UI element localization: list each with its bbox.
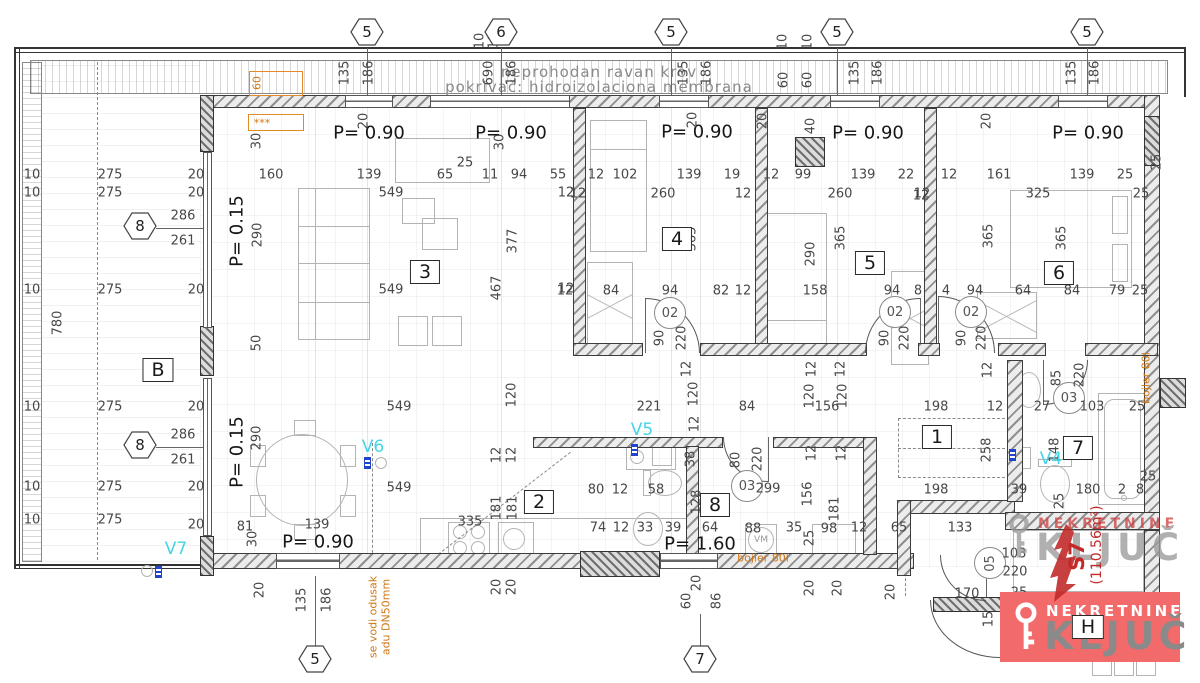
door-number-text: 05 bbox=[982, 555, 997, 572]
dimension-label: 275 bbox=[98, 400, 123, 415]
dimension-label: 20 bbox=[690, 575, 705, 592]
dimension-label: 335 bbox=[458, 515, 483, 530]
dimension-label: 12 bbox=[735, 284, 752, 299]
shaft-label: V6 bbox=[362, 437, 384, 457]
dimension-label: 220 bbox=[1073, 363, 1088, 388]
dimension-label: 365 bbox=[834, 226, 849, 251]
dimension-label: 80 bbox=[588, 483, 605, 498]
dimension-label: 27 bbox=[1034, 400, 1051, 415]
dimension-label: 299 bbox=[756, 482, 781, 497]
fixture-circle bbox=[256, 434, 348, 526]
grid-axis-marker: 5 bbox=[349, 16, 385, 52]
dimension-label: 156 bbox=[801, 482, 816, 507]
floor-level-label: P= 0.15 bbox=[227, 195, 248, 267]
dimension-label: 10 bbox=[24, 513, 41, 528]
wall-crosshatch bbox=[200, 536, 214, 576]
dimension-label: 20 bbox=[188, 168, 205, 183]
floor-level-label: P= 0.90 bbox=[832, 123, 904, 144]
dimension-label: 50 bbox=[250, 335, 265, 352]
dimension-label: 467 bbox=[490, 276, 505, 301]
dimension-label: 94 bbox=[967, 284, 984, 299]
dimension-label: 20 bbox=[505, 579, 520, 596]
dimension-label: 180 bbox=[1076, 483, 1101, 498]
furniture bbox=[340, 445, 356, 467]
agency-name-main: KLJUČ bbox=[1044, 614, 1191, 658]
dimension-label: 90 bbox=[955, 330, 970, 347]
dimension-label: 275 bbox=[98, 168, 123, 183]
dimension-label: 120 bbox=[687, 382, 702, 407]
dimension-label: 90 bbox=[653, 330, 668, 347]
dimension-label: 84 bbox=[1064, 284, 1081, 299]
dimension-label: 170 bbox=[955, 587, 980, 602]
dimension-label: 135 bbox=[677, 61, 692, 86]
grid-axis-marker: 8 bbox=[122, 429, 158, 465]
wall bbox=[773, 437, 877, 448]
annotation-note: VM bbox=[754, 535, 768, 545]
dimension-label: 12 bbox=[612, 483, 629, 498]
wall-crosshatch bbox=[200, 326, 214, 376]
dimension-label: 30 bbox=[493, 134, 508, 151]
dimension-label: 12 bbox=[805, 445, 820, 462]
dimension-label: 12 bbox=[613, 521, 630, 536]
dimension-label: 20 bbox=[980, 113, 995, 130]
svg-text:8: 8 bbox=[135, 436, 145, 454]
dimension-label: 12 bbox=[505, 447, 520, 464]
window bbox=[659, 95, 709, 108]
dimension-label: 181 bbox=[490, 496, 505, 521]
dimension-label: 12 bbox=[914, 187, 931, 202]
door-number-text: 03 bbox=[739, 479, 756, 494]
grid-axis-marker: 6 bbox=[483, 16, 519, 52]
dimension-label: 74 bbox=[590, 521, 607, 536]
dimension-label: 12 bbox=[981, 362, 996, 379]
room-label: H bbox=[1072, 615, 1104, 639]
dimension-label: 19 bbox=[724, 168, 741, 183]
wall bbox=[863, 437, 877, 555]
line bbox=[501, 95, 502, 565]
floor-level-label: P= 0.90 bbox=[1052, 123, 1124, 144]
dimension-label: 12 bbox=[735, 187, 752, 202]
dimension-label: 139 bbox=[305, 518, 330, 533]
line bbox=[372, 443, 373, 558]
wall bbox=[924, 108, 937, 355]
svg-text:5: 5 bbox=[1082, 23, 1092, 41]
vent-marker bbox=[631, 444, 638, 456]
dimension-label: 15 bbox=[982, 611, 997, 628]
dimension-label: 12 bbox=[688, 416, 703, 433]
dimension-label: 377 bbox=[506, 229, 521, 254]
dimension-label: 286 bbox=[171, 209, 196, 224]
dimension-label: 60 bbox=[801, 72, 816, 89]
dimension-label: 290 bbox=[250, 426, 265, 451]
floor-level-label: P= 0.90 bbox=[282, 532, 354, 553]
floor-level-label: P= 0.15 bbox=[227, 416, 248, 488]
window bbox=[276, 553, 340, 569]
floor-plan-canvas: neprohodan ravan krov pokrivač: hidroizo… bbox=[0, 0, 1200, 683]
dimension-label: 25 bbox=[803, 530, 818, 547]
dimension-label: 8 bbox=[1136, 483, 1144, 498]
furniture bbox=[398, 316, 428, 346]
dimension-label: 261 bbox=[171, 453, 196, 468]
room-label: 5 bbox=[855, 251, 885, 275]
line bbox=[837, 48, 838, 95]
window bbox=[660, 553, 718, 569]
dimension-label: 161 bbox=[987, 168, 1012, 183]
dimension-label: 20 bbox=[188, 518, 205, 533]
line bbox=[837, 95, 838, 565]
dimension-label: 549 bbox=[387, 400, 412, 415]
dimension-label: 8 bbox=[914, 284, 922, 299]
dimension-label: 181 bbox=[506, 496, 521, 521]
door-number: 02 bbox=[879, 296, 911, 328]
grid-axis-marker: 8 bbox=[122, 210, 158, 246]
furniture bbox=[1112, 196, 1128, 234]
grid-axis-marker: 7 bbox=[682, 643, 718, 679]
dimension-label: 365 bbox=[1055, 226, 1070, 251]
dimension-label: 365 bbox=[982, 224, 997, 249]
key-icon bbox=[1006, 514, 1032, 562]
furniture bbox=[652, 447, 672, 466]
dimension-label: 275 bbox=[98, 186, 123, 201]
grid-axis-marker: 5 bbox=[1069, 16, 1105, 52]
dimension-label: 286 bbox=[171, 428, 196, 443]
dimension-label: 186 bbox=[871, 61, 886, 86]
dimension-label: 186 bbox=[320, 588, 335, 613]
dimension-label: 12 bbox=[588, 168, 605, 183]
dimension-label: 10 bbox=[24, 186, 41, 201]
dimension-label: 258 bbox=[980, 438, 995, 463]
room-label: 8 bbox=[700, 493, 730, 517]
dimension-label: 39 bbox=[665, 521, 682, 536]
dimension-label: 135 bbox=[295, 588, 310, 613]
dimension-label: 181 bbox=[828, 497, 843, 522]
window bbox=[203, 152, 212, 328]
dimension-label: 20 bbox=[803, 580, 818, 597]
wall bbox=[573, 108, 586, 355]
frame-bottom-left2 bbox=[14, 568, 216, 569]
furniture bbox=[298, 302, 370, 340]
dimension-label: 186 bbox=[700, 61, 715, 86]
annotation-note: bojler 80l bbox=[1140, 352, 1153, 404]
window bbox=[203, 378, 212, 536]
annotation-note: se vodi odusak bbox=[367, 576, 380, 658]
room-label: 2 bbox=[524, 490, 554, 514]
dimension-label: 94 bbox=[884, 284, 901, 299]
window bbox=[830, 95, 880, 108]
annotation-note: bojler 80l bbox=[737, 552, 789, 565]
dimension-label: 275 bbox=[98, 283, 123, 298]
dimension-label: 39 bbox=[1011, 483, 1028, 498]
furniture bbox=[298, 226, 370, 264]
dimension-label: 58 bbox=[648, 483, 665, 498]
dimension-label: 25 bbox=[1132, 284, 1149, 299]
dimension-label: 94 bbox=[662, 284, 679, 299]
dimension-label: 12 bbox=[557, 284, 574, 299]
dimension-label: 186 bbox=[362, 61, 377, 86]
dimension-label: 549 bbox=[379, 283, 404, 298]
flat-roof-band: neprohodan ravan krov pokrivač: hidroizo… bbox=[30, 60, 1168, 94]
svg-text:7: 7 bbox=[695, 650, 705, 668]
frame-right-stub bbox=[1184, 47, 1186, 97]
door-number-text: 02 bbox=[963, 305, 980, 320]
key-icon bbox=[1012, 602, 1040, 654]
dimension-label: 290 bbox=[251, 223, 266, 248]
dimension-label: 60 bbox=[680, 593, 695, 610]
dimension-label: 12 bbox=[835, 445, 850, 462]
dimension-label: 220 bbox=[1003, 565, 1028, 580]
dimension-label: 325 bbox=[1026, 187, 1051, 202]
dimension-label: 220 bbox=[751, 447, 766, 472]
dimension-label: 221 bbox=[637, 400, 662, 415]
dimension-label: 158 bbox=[803, 284, 828, 299]
dimension-label: 25 bbox=[1150, 154, 1165, 171]
dimension-label: 120 bbox=[836, 384, 851, 409]
wall bbox=[573, 343, 643, 356]
frame-bottom-left bbox=[14, 564, 216, 566]
dimension-label: 12 bbox=[834, 361, 849, 378]
dimension-label: 549 bbox=[379, 186, 404, 201]
wall-crosshatch bbox=[200, 95, 214, 152]
furniture bbox=[432, 316, 462, 346]
dimension-label: 20 bbox=[188, 400, 205, 415]
dimension-label: 261 bbox=[171, 234, 196, 249]
frame-left-outer bbox=[14, 47, 16, 568]
wall-crosshatch bbox=[795, 137, 825, 167]
dimension-label: 25 bbox=[1133, 187, 1150, 202]
svg-text:5: 5 bbox=[832, 23, 842, 41]
apartment-area-label: (110.56m²) bbox=[1089, 505, 1105, 584]
dimension-label: 690 bbox=[482, 61, 497, 86]
red-arrow-mark bbox=[1046, 522, 1082, 608]
dimension-label: 98 bbox=[821, 522, 838, 537]
dimension-label: 275 bbox=[98, 513, 123, 528]
fixture-circle bbox=[141, 565, 153, 577]
annotation-note: adu DN50mm bbox=[380, 579, 393, 655]
window bbox=[345, 95, 393, 108]
dimension-label: 40 bbox=[804, 118, 819, 135]
door-number-text: 02 bbox=[887, 305, 904, 320]
dimension-label: 133 bbox=[948, 521, 973, 536]
frame-top-outer bbox=[14, 47, 1186, 49]
dimension-label: 80 bbox=[729, 452, 744, 469]
dimension-label: 85 bbox=[1050, 370, 1065, 387]
svg-text:6: 6 bbox=[496, 23, 506, 41]
dimension-label: 11 bbox=[482, 168, 499, 183]
fixture-circle bbox=[375, 457, 387, 469]
wall bbox=[755, 108, 768, 355]
dimension-label: 2 bbox=[1118, 483, 1126, 498]
dimension-label: 260 bbox=[651, 187, 676, 202]
wall-crosshatch bbox=[1160, 378, 1186, 408]
dimension-label: 20 bbox=[884, 584, 899, 601]
dimension-label: 10 bbox=[776, 34, 791, 51]
dimension-label: 139 bbox=[851, 168, 876, 183]
dimension-label: 12 bbox=[680, 361, 695, 378]
grid-axis-marker: 5 bbox=[297, 643, 333, 679]
dimension-label: 22 bbox=[898, 168, 915, 183]
dimension-label: 25 bbox=[1053, 493, 1068, 510]
shaft-label: V7 bbox=[165, 539, 187, 559]
dimension-label: 139 bbox=[677, 168, 702, 183]
roof-note-line2: pokrivač: hidroizolaciona membrana bbox=[31, 78, 1167, 96]
dimension-label: 780 bbox=[51, 311, 66, 336]
dimension-label: 103 bbox=[1080, 400, 1105, 415]
dimension-label: 290 bbox=[804, 242, 819, 267]
floor-level-label: P= 1.60 bbox=[664, 534, 736, 555]
dimension-label: 12 bbox=[941, 168, 958, 183]
wall-crosshatch bbox=[580, 551, 660, 577]
dimension-label: 12 bbox=[490, 447, 505, 464]
dimension-label: 139 bbox=[357, 168, 382, 183]
svg-text:5: 5 bbox=[362, 23, 372, 41]
door-number-text: 02 bbox=[662, 306, 679, 321]
dimension-label: 12 bbox=[987, 400, 1004, 415]
dimension-label: 10 bbox=[801, 34, 816, 51]
dimension-label: 12 bbox=[570, 187, 587, 202]
dimension-label: 10 bbox=[24, 168, 41, 183]
door-swing-arc bbox=[930, 600, 1000, 658]
line bbox=[501, 48, 502, 95]
dimension-label: 64 bbox=[1015, 284, 1032, 299]
shaft-label: V5 bbox=[631, 420, 653, 440]
dimension-label: 20 bbox=[188, 283, 205, 298]
window bbox=[1058, 95, 1108, 108]
dimension-label: 139 bbox=[1070, 168, 1095, 183]
wall bbox=[1007, 360, 1023, 502]
dimension-label: 84 bbox=[603, 284, 620, 299]
dimension-label: 198 bbox=[924, 483, 949, 498]
wardrobe bbox=[587, 262, 633, 350]
dimension-label: 65 bbox=[891, 521, 908, 536]
wall bbox=[897, 500, 911, 576]
svg-text:8: 8 bbox=[135, 217, 145, 235]
dimension-label: 20 bbox=[686, 112, 701, 129]
room-label: B bbox=[142, 358, 173, 382]
dimension-label: 260 bbox=[828, 187, 853, 202]
annotation-note: 60 bbox=[251, 76, 264, 90]
line bbox=[700, 95, 701, 553]
dimension-label: 90 bbox=[878, 330, 893, 347]
dimension-label: 99 bbox=[795, 168, 812, 183]
line bbox=[671, 48, 672, 95]
fixture-circle bbox=[503, 528, 525, 550]
svg-text:5: 5 bbox=[310, 650, 320, 668]
vent-marker bbox=[1009, 449, 1016, 461]
dimension-label: 220 bbox=[675, 326, 690, 351]
dimension-label: 94 bbox=[511, 168, 528, 183]
dimension-label: 35 bbox=[786, 521, 803, 536]
dimension-label: 60 bbox=[777, 72, 792, 89]
dimension-label: 20 bbox=[756, 113, 771, 130]
dimension-label: 30 bbox=[246, 531, 261, 548]
dimension-label: 275 bbox=[98, 480, 123, 495]
dimension-label: 186 bbox=[505, 61, 520, 86]
furniture bbox=[590, 120, 647, 150]
dimension-label: 160 bbox=[259, 168, 284, 183]
dimension-label: 82 bbox=[713, 284, 730, 299]
furniture bbox=[250, 495, 266, 517]
frame-left-inner bbox=[19, 47, 20, 568]
furniture bbox=[1112, 244, 1128, 282]
dimension-label: 198 bbox=[924, 400, 949, 415]
dimension-label: 12 bbox=[763, 168, 780, 183]
room-label: 4 bbox=[662, 227, 692, 251]
dimension-label: 25 bbox=[1117, 168, 1134, 183]
dimension-label: 20 bbox=[253, 582, 268, 599]
dimension-label: 186 bbox=[1088, 61, 1103, 86]
dimension-label: 4 bbox=[942, 284, 950, 299]
room-label: 7 bbox=[1063, 436, 1093, 460]
line bbox=[768, 437, 769, 482]
dimension-label: 135 bbox=[848, 61, 863, 86]
dimension-label: 12 bbox=[851, 521, 868, 536]
furniture bbox=[422, 218, 458, 250]
dimension-label: 549 bbox=[387, 481, 412, 496]
door-number: 02 bbox=[654, 297, 686, 329]
wall bbox=[700, 343, 867, 356]
dimension-label: 20 bbox=[357, 113, 372, 130]
dimension-label: 20 bbox=[831, 580, 846, 597]
dimension-label: 135 bbox=[1065, 61, 1080, 86]
dimension-label: 20 bbox=[490, 579, 505, 596]
dimension-label: 30 bbox=[250, 133, 265, 150]
vent-marker bbox=[364, 457, 371, 469]
dimension-label: 12 bbox=[805, 361, 820, 378]
dimension-label: 84 bbox=[739, 400, 756, 415]
dimension-label: 10 bbox=[24, 480, 41, 495]
floor-level-label: P= 0.90 bbox=[475, 123, 547, 144]
dimension-label: 25 bbox=[457, 156, 474, 171]
dimension-label: 120 bbox=[505, 383, 520, 408]
furniture bbox=[294, 420, 316, 436]
dimension-label: 65 bbox=[437, 168, 454, 183]
annotation-note: *** bbox=[254, 117, 271, 130]
shaft-label: V4 bbox=[1040, 449, 1062, 469]
grid-axis-marker: 5 bbox=[819, 16, 855, 52]
dimension-label: 135 bbox=[338, 61, 353, 86]
frame-top-inner bbox=[14, 52, 1186, 53]
line bbox=[315, 576, 316, 648]
room-label: 3 bbox=[410, 260, 440, 284]
dimension-label: 25 bbox=[1140, 470, 1157, 485]
furniture bbox=[340, 495, 356, 517]
dimension-label: 38 bbox=[684, 451, 699, 468]
line bbox=[156, 228, 208, 229]
grid-axis-marker: 5 bbox=[653, 16, 689, 52]
room-label: 6 bbox=[1044, 261, 1074, 285]
dimension-label: 10 bbox=[24, 283, 41, 298]
wall bbox=[998, 343, 1046, 356]
svg-text:5: 5 bbox=[666, 23, 676, 41]
dimension-label: 20 bbox=[188, 480, 205, 495]
dimension-label: 20 bbox=[188, 186, 205, 201]
door-number-text: 03 bbox=[1061, 391, 1078, 406]
line bbox=[156, 447, 208, 448]
window bbox=[430, 95, 570, 108]
dimension-label: 10 bbox=[24, 400, 41, 415]
vent-marker bbox=[155, 566, 162, 578]
dimension-label: 55 bbox=[550, 168, 567, 183]
door-number: 02 bbox=[955, 296, 987, 328]
dimension-label: 220 bbox=[975, 326, 990, 351]
dimension-label: 33 bbox=[637, 521, 654, 536]
dimension-label: 79 bbox=[1109, 284, 1126, 299]
dimension-label: 86 bbox=[710, 593, 725, 610]
wall bbox=[918, 343, 940, 356]
dimension-label: 102 bbox=[613, 168, 638, 183]
dimension-label: 64 bbox=[702, 521, 719, 536]
dimension-label: 220 bbox=[898, 326, 913, 351]
